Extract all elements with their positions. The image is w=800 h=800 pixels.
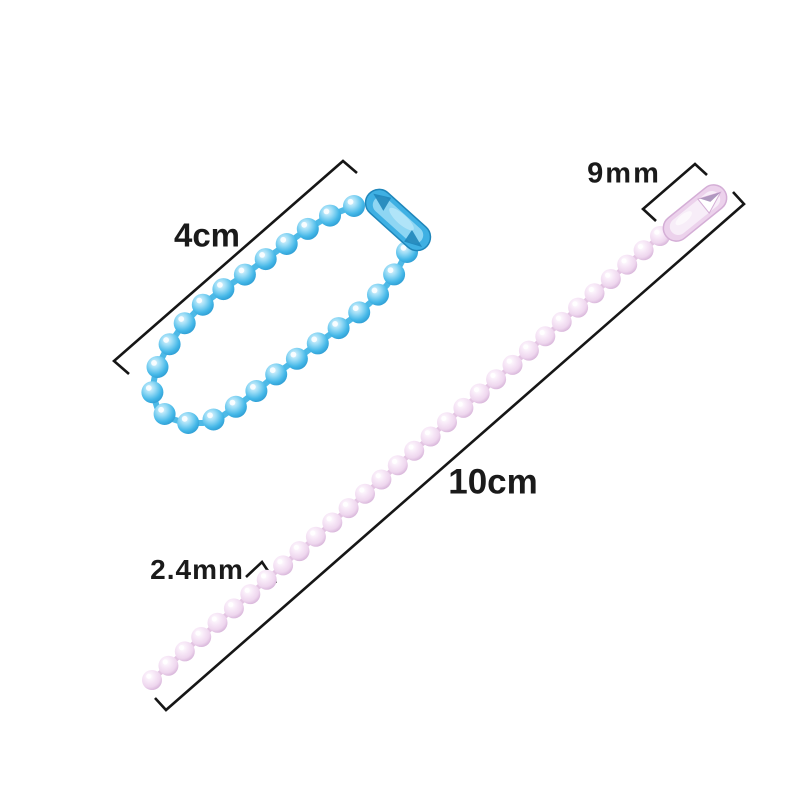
pink-connector-length-label: 9mm	[587, 160, 661, 189]
blue-connector-clasp	[360, 184, 436, 256]
chains-illustration	[0, 0, 800, 800]
product-photo: 4cm 9mm 10cm 2.4mm	[0, 0, 800, 800]
blue-chain-length-label: 4cm	[174, 219, 240, 252]
pink-bead-diameter-label: 2.4mm	[150, 556, 244, 584]
pink-chain-length-label: 10cm	[448, 465, 538, 500]
pink-connector-clasp	[658, 180, 732, 247]
